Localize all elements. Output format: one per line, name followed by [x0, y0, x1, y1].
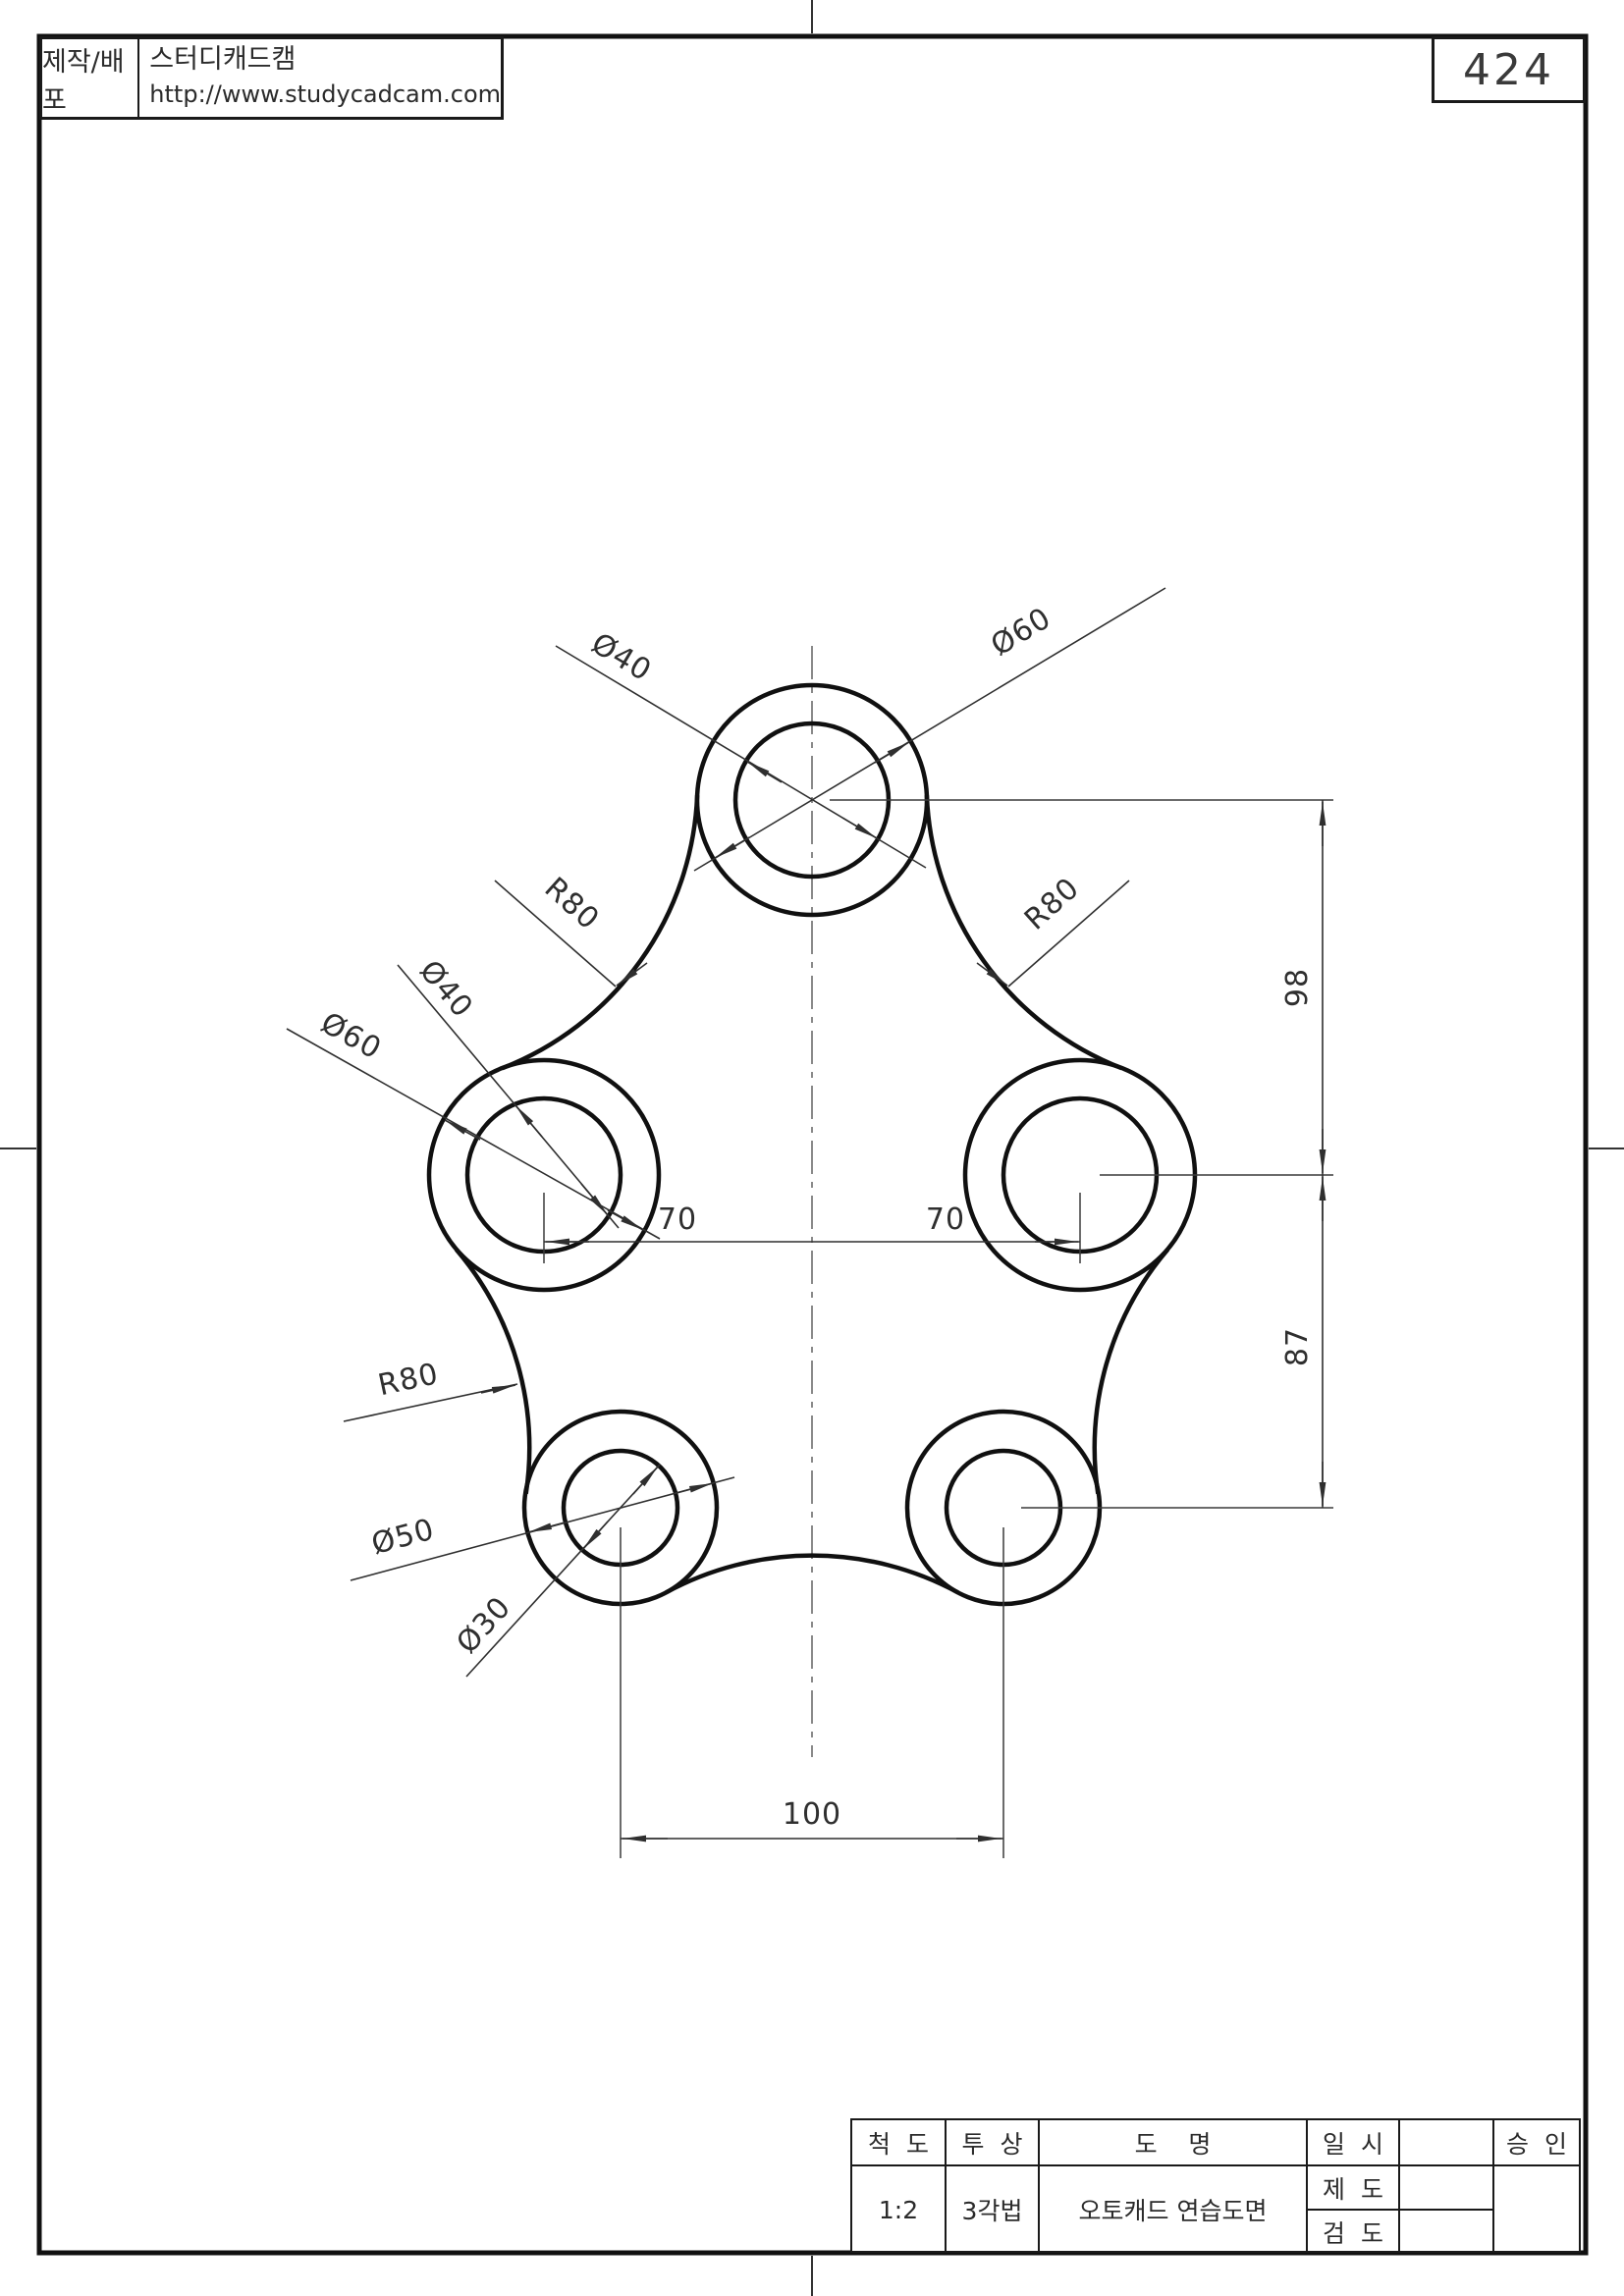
header-right-cell: 스터디캐드캠 http://www.studycadcam.com [139, 39, 501, 117]
dim-label-70-6: 70 [658, 1202, 697, 1237]
dim-label-R80-10: R80 [375, 1357, 442, 1403]
dim-label-87-9: 87 [1280, 1327, 1315, 1366]
extension-lines [544, 800, 1333, 1858]
title-date-label: 일 시 [1306, 2120, 1398, 2164]
dim-label-dia30-12: Ø30 [450, 1590, 517, 1661]
fillet-top-right [927, 795, 1122, 1068]
header-box: 제작/배포 스터디캐드캠 http://www.studycadcam.com [39, 36, 504, 120]
brand-name: 스터디캐드캠 [149, 43, 501, 77]
dim-label-70-7: 70 [926, 1202, 965, 1237]
dim-label-dia50-11: Ø50 [368, 1513, 439, 1563]
title-draft-value [1398, 2164, 1492, 2209]
dimension-lines [287, 588, 1323, 1839]
title-date-value [1398, 2120, 1492, 2164]
title-check-label: 검 도 [1306, 2209, 1398, 2253]
title-scale-value: 1:2 [852, 2164, 945, 2253]
title-name-label: 도 명 [1038, 2120, 1306, 2164]
dim-label-dia60-4: Ø60 [315, 1006, 388, 1067]
title-check-value [1398, 2209, 1492, 2253]
dim-label-dia60-1: Ø60 [985, 601, 1057, 663]
fillet-top-left [503, 795, 697, 1068]
dim-label-98-8: 98 [1280, 968, 1315, 1007]
dim-label-dia40-5: Ø40 [412, 954, 479, 1025]
page-number-box: 424 [1432, 36, 1586, 103]
title-approval-label: 승 인 [1492, 2120, 1579, 2164]
cad-drawing-canvas: Ø40Ø60R80R80Ø60Ø4070709887R80Ø50Ø30100 [0, 0, 1624, 2296]
title-scale-label: 척 도 [852, 2120, 945, 2164]
dim-label-100-13: 100 [783, 1797, 841, 1832]
title-name-value: 오토캐드 연습도면 [1038, 2164, 1306, 2253]
header-left-label: 제작/배포 [42, 39, 139, 117]
title-block: 척 도 투 상 도 명 일 시 승 인 1:2 3각법 오토캐드 연습도면 제 … [850, 2118, 1581, 2253]
title-projection-value: 3각법 [945, 2164, 1038, 2253]
title-approval-value [1492, 2164, 1579, 2253]
title-draft-label: 제 도 [1306, 2164, 1398, 2209]
brand-url[interactable]: http://www.studycadcam.com [149, 77, 501, 112]
title-projection-label: 투 상 [945, 2120, 1038, 2164]
dim-label-dia40-0: Ø40 [585, 626, 658, 688]
drawing-sheet: { "page": { "number": "424" }, "header":… [0, 0, 1624, 2296]
page-number: 424 [1463, 45, 1554, 95]
dimension-labels: Ø40Ø60R80R80Ø60Ø4070709887R80Ø50Ø30100 [315, 601, 1315, 1832]
